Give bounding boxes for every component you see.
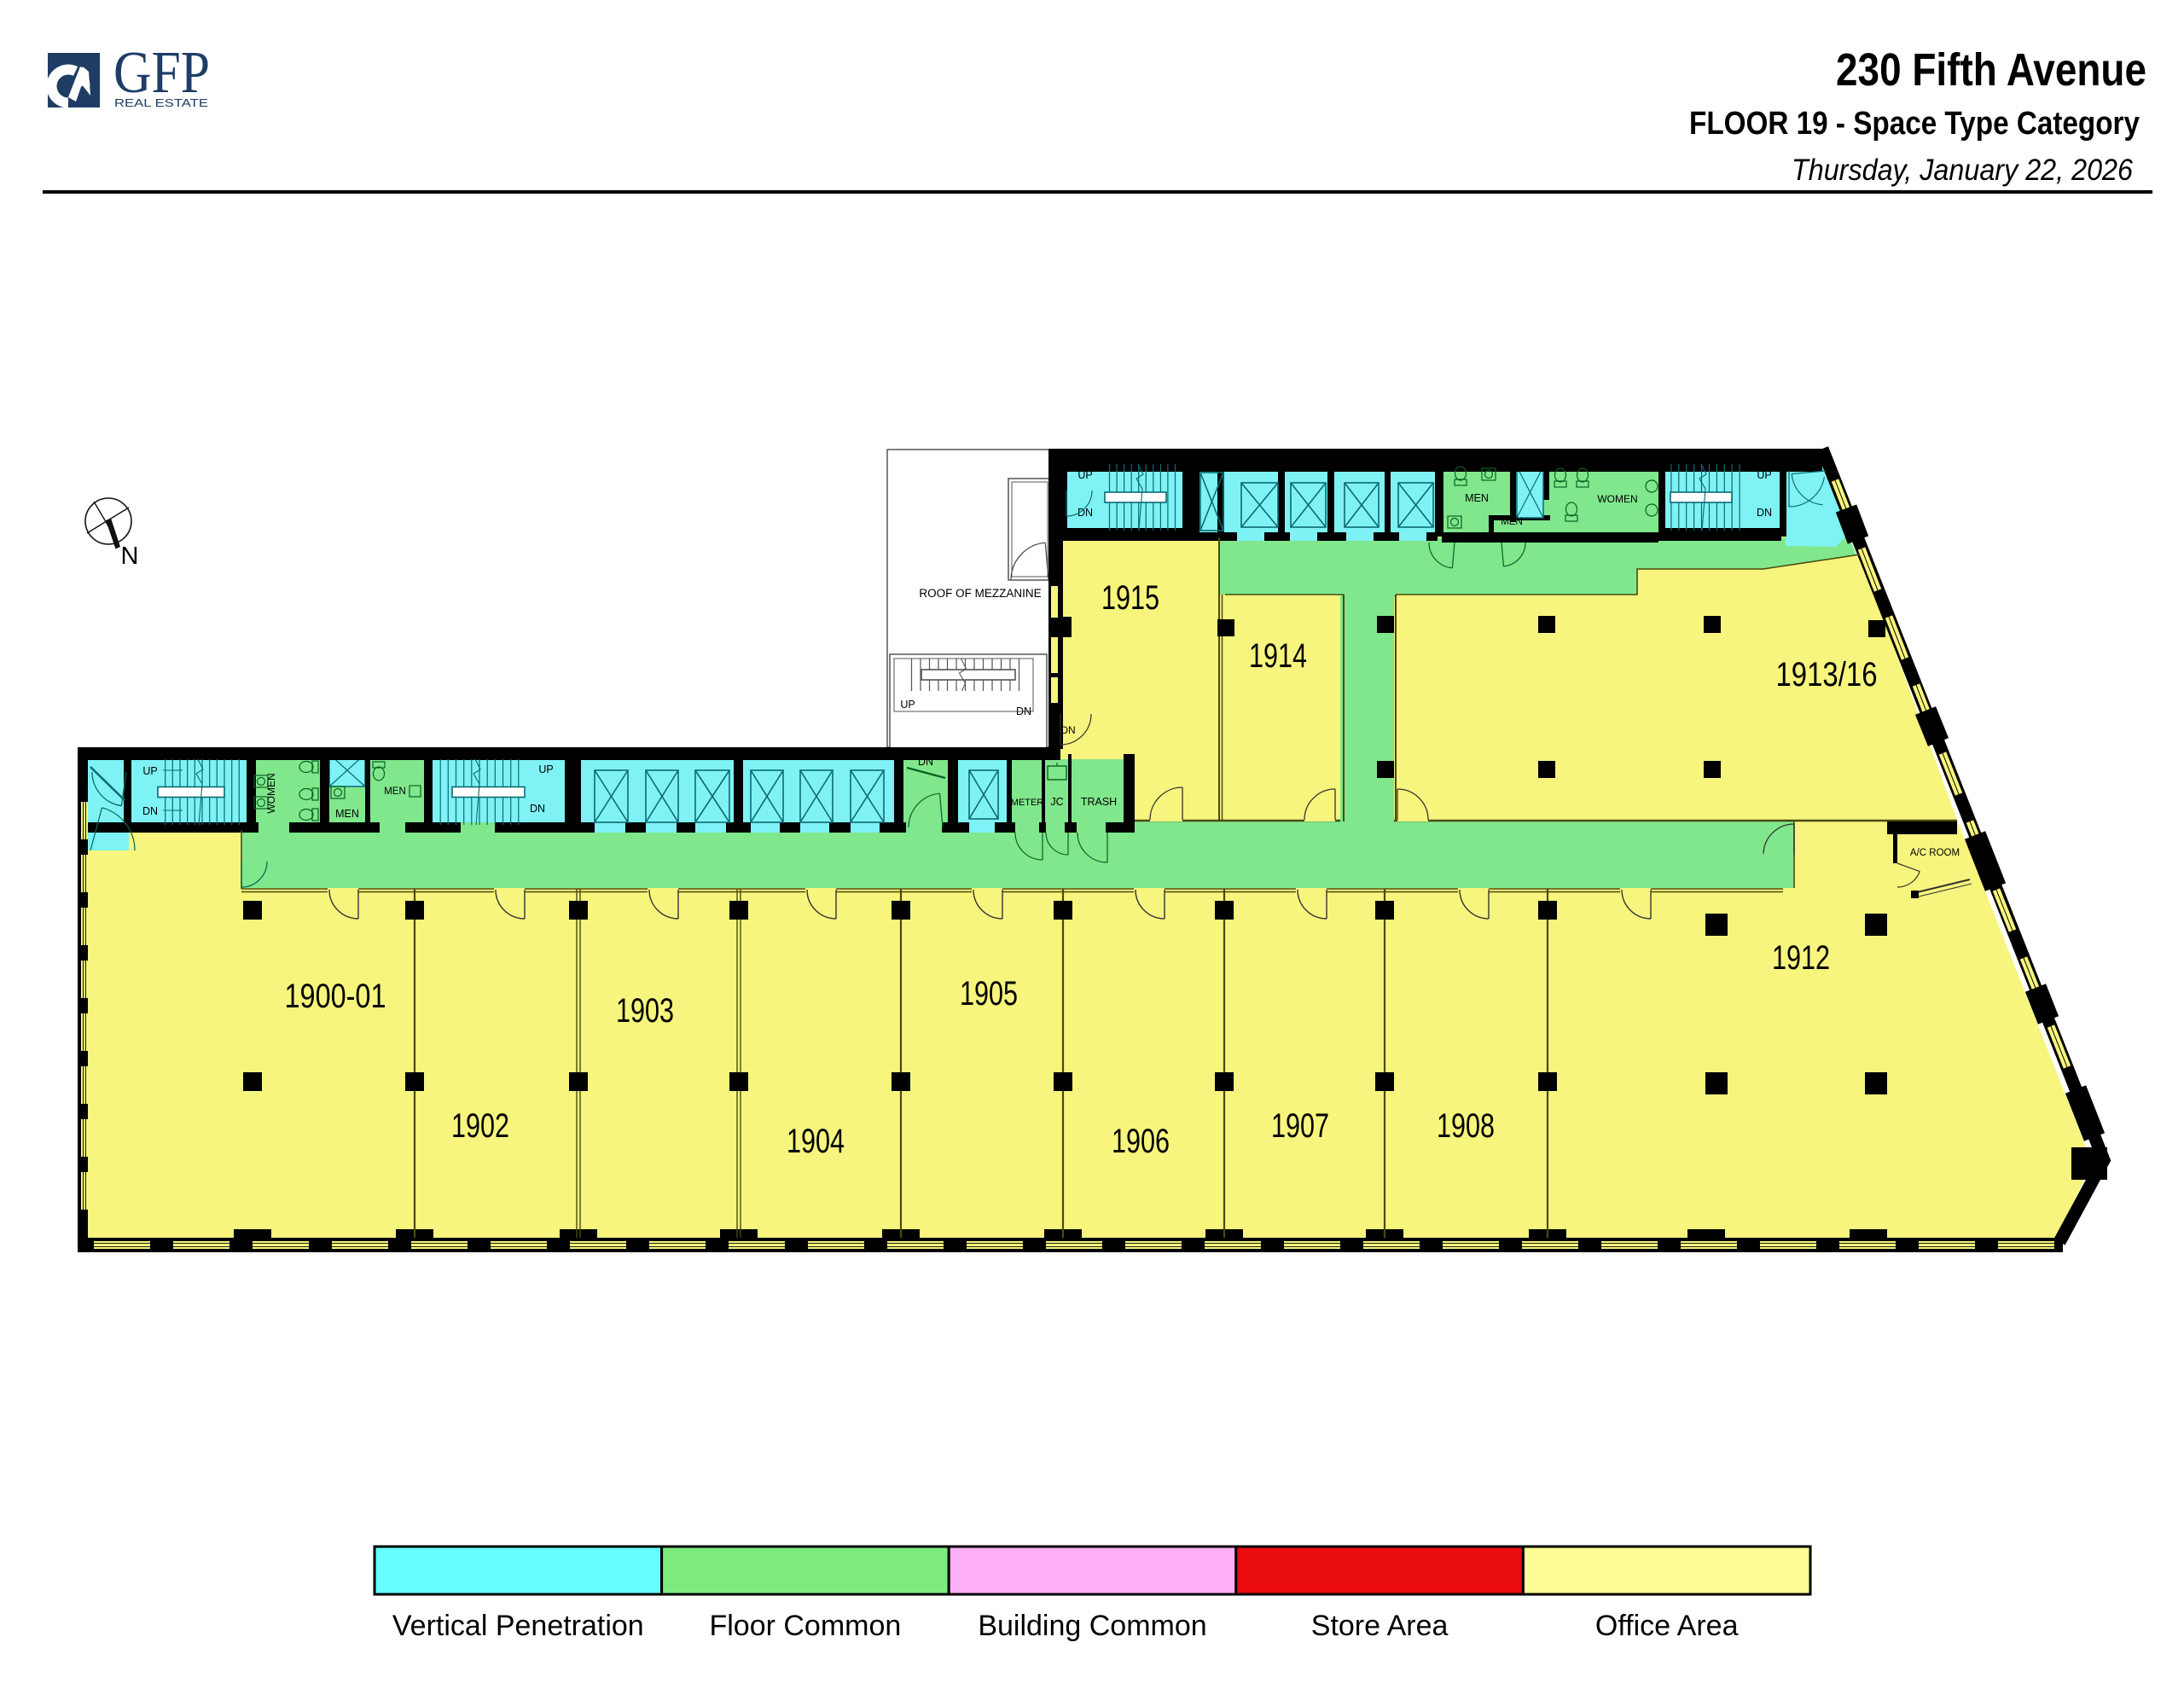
- svg-text:DN: DN: [1016, 705, 1031, 717]
- svg-text:TRASH: TRASH: [1081, 796, 1117, 808]
- svg-text:1903: 1903: [616, 992, 674, 1030]
- svg-text:UP: UP: [1757, 469, 1771, 481]
- svg-text:1904: 1904: [787, 1123, 845, 1160]
- svg-text:DN: DN: [918, 756, 933, 768]
- svg-text:Building Common: Building Common: [978, 1610, 1206, 1642]
- svg-text:DN: DN: [1757, 507, 1772, 519]
- svg-text:MEN: MEN: [1501, 517, 1523, 527]
- svg-text:WOMEN: WOMEN: [265, 773, 277, 813]
- svg-text:UP: UP: [538, 763, 553, 775]
- svg-text:1914: 1914: [1249, 637, 1307, 675]
- svg-text:1915: 1915: [1101, 579, 1159, 617]
- svg-text:FLOOR 19 - Space Type Category: FLOOR 19 - Space Type Category: [1689, 106, 2140, 142]
- svg-text:MEN: MEN: [384, 786, 406, 797]
- svg-text:1907: 1907: [1271, 1107, 1329, 1145]
- svg-text:REAL ESTATE: REAL ESTATE: [114, 97, 208, 109]
- svg-text:UP: UP: [1077, 469, 1092, 481]
- svg-text:WOMEN: WOMEN: [1597, 493, 1637, 505]
- svg-text:N: N: [121, 543, 139, 570]
- svg-text:ROOF OF MEZZANINE: ROOF OF MEZZANINE: [919, 587, 1041, 600]
- svg-text:DN: DN: [142, 805, 158, 817]
- svg-text:1912: 1912: [1772, 939, 1830, 977]
- svg-text:1905: 1905: [960, 975, 1018, 1013]
- svg-text:DN: DN: [530, 803, 545, 815]
- svg-text:230 Fifth Avenue: 230 Fifth Avenue: [1836, 44, 2146, 96]
- svg-text:1906: 1906: [1112, 1123, 1170, 1160]
- svg-text:Store Area: Store Area: [1311, 1610, 1449, 1642]
- svg-text:Vertical Penetration: Vertical Penetration: [392, 1610, 644, 1642]
- svg-text:UP: UP: [142, 765, 157, 777]
- svg-text:Thursday, January 22, 2026: Thursday, January 22, 2026: [1792, 154, 2133, 187]
- svg-text:MEN: MEN: [335, 808, 359, 820]
- svg-text:1902: 1902: [451, 1107, 509, 1145]
- svg-text:GFP: GFP: [113, 40, 210, 106]
- svg-text:MEN: MEN: [1465, 492, 1489, 504]
- svg-text:UP: UP: [900, 699, 915, 711]
- svg-text:METER: METER: [1011, 798, 1044, 808]
- svg-text:Office Area: Office Area: [1595, 1610, 1739, 1642]
- svg-text:JC: JC: [1050, 796, 1063, 808]
- svg-text:1900-01: 1900-01: [285, 978, 386, 1015]
- svg-text:1908: 1908: [1437, 1107, 1495, 1145]
- svg-text:Floor Common: Floor Common: [709, 1610, 901, 1642]
- svg-text:1913/16: 1913/16: [1776, 656, 1878, 694]
- svg-text:A/C ROOM: A/C ROOM: [1910, 848, 1960, 858]
- svg-text:DN: DN: [1060, 724, 1075, 736]
